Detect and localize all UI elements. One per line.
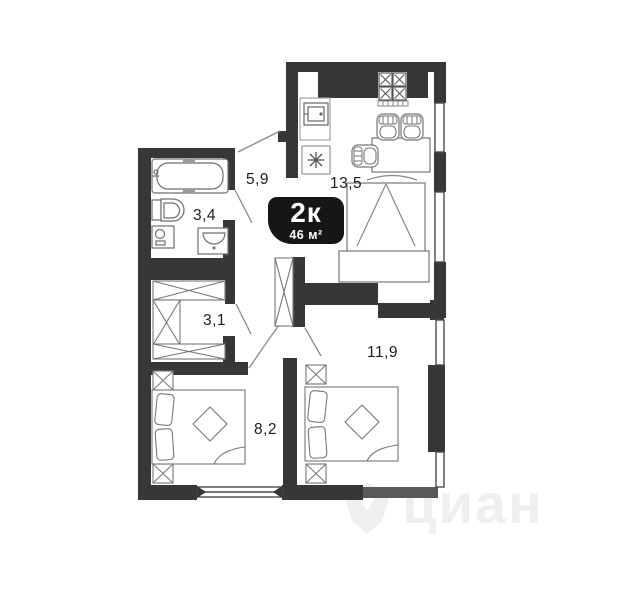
total-area: 46 м² — [289, 229, 322, 242]
bedroom-left-furniture — [152, 371, 245, 483]
window-bedroom-right-top — [436, 320, 444, 365]
kitchen-sink — [304, 103, 328, 125]
bathtub — [152, 159, 228, 193]
label-bedroom-left: 8,2 — [254, 421, 277, 438]
window-kitchen — [435, 103, 444, 152]
toilet — [152, 199, 184, 221]
loggia-parapet — [363, 487, 438, 498]
chair-icon — [352, 145, 378, 167]
label-bathroom: 3,4 — [193, 207, 216, 224]
label-kitchen-living: 13,5 — [330, 175, 362, 192]
chair-icon — [377, 114, 399, 140]
rooms-count: 2к — [290, 199, 322, 227]
stove — [378, 73, 408, 106]
apartment-type-badge: 2к 46 м² — [268, 197, 344, 244]
door-entry — [238, 131, 280, 152]
fridge-icon — [302, 146, 330, 174]
chair-icon — [401, 114, 423, 140]
door-closet — [236, 304, 251, 334]
label-bedroom-right: 11,9 — [367, 344, 398, 361]
door-bedroom-right — [305, 328, 321, 356]
floorplan-image: циан 2к 46 м² — [0, 0, 625, 607]
washing-machine — [152, 226, 174, 248]
door-bathroom — [235, 190, 252, 223]
window-bedroom-right-bottom — [436, 452, 444, 487]
dining-table — [372, 138, 430, 172]
hall-wardrobe — [275, 258, 293, 326]
bathroom-sink — [198, 228, 228, 254]
window-living — [435, 192, 444, 262]
label-closet: 3,1 — [203, 312, 226, 329]
bedroom-right-furniture — [305, 365, 398, 483]
label-hallway: 5,9 — [246, 171, 269, 188]
